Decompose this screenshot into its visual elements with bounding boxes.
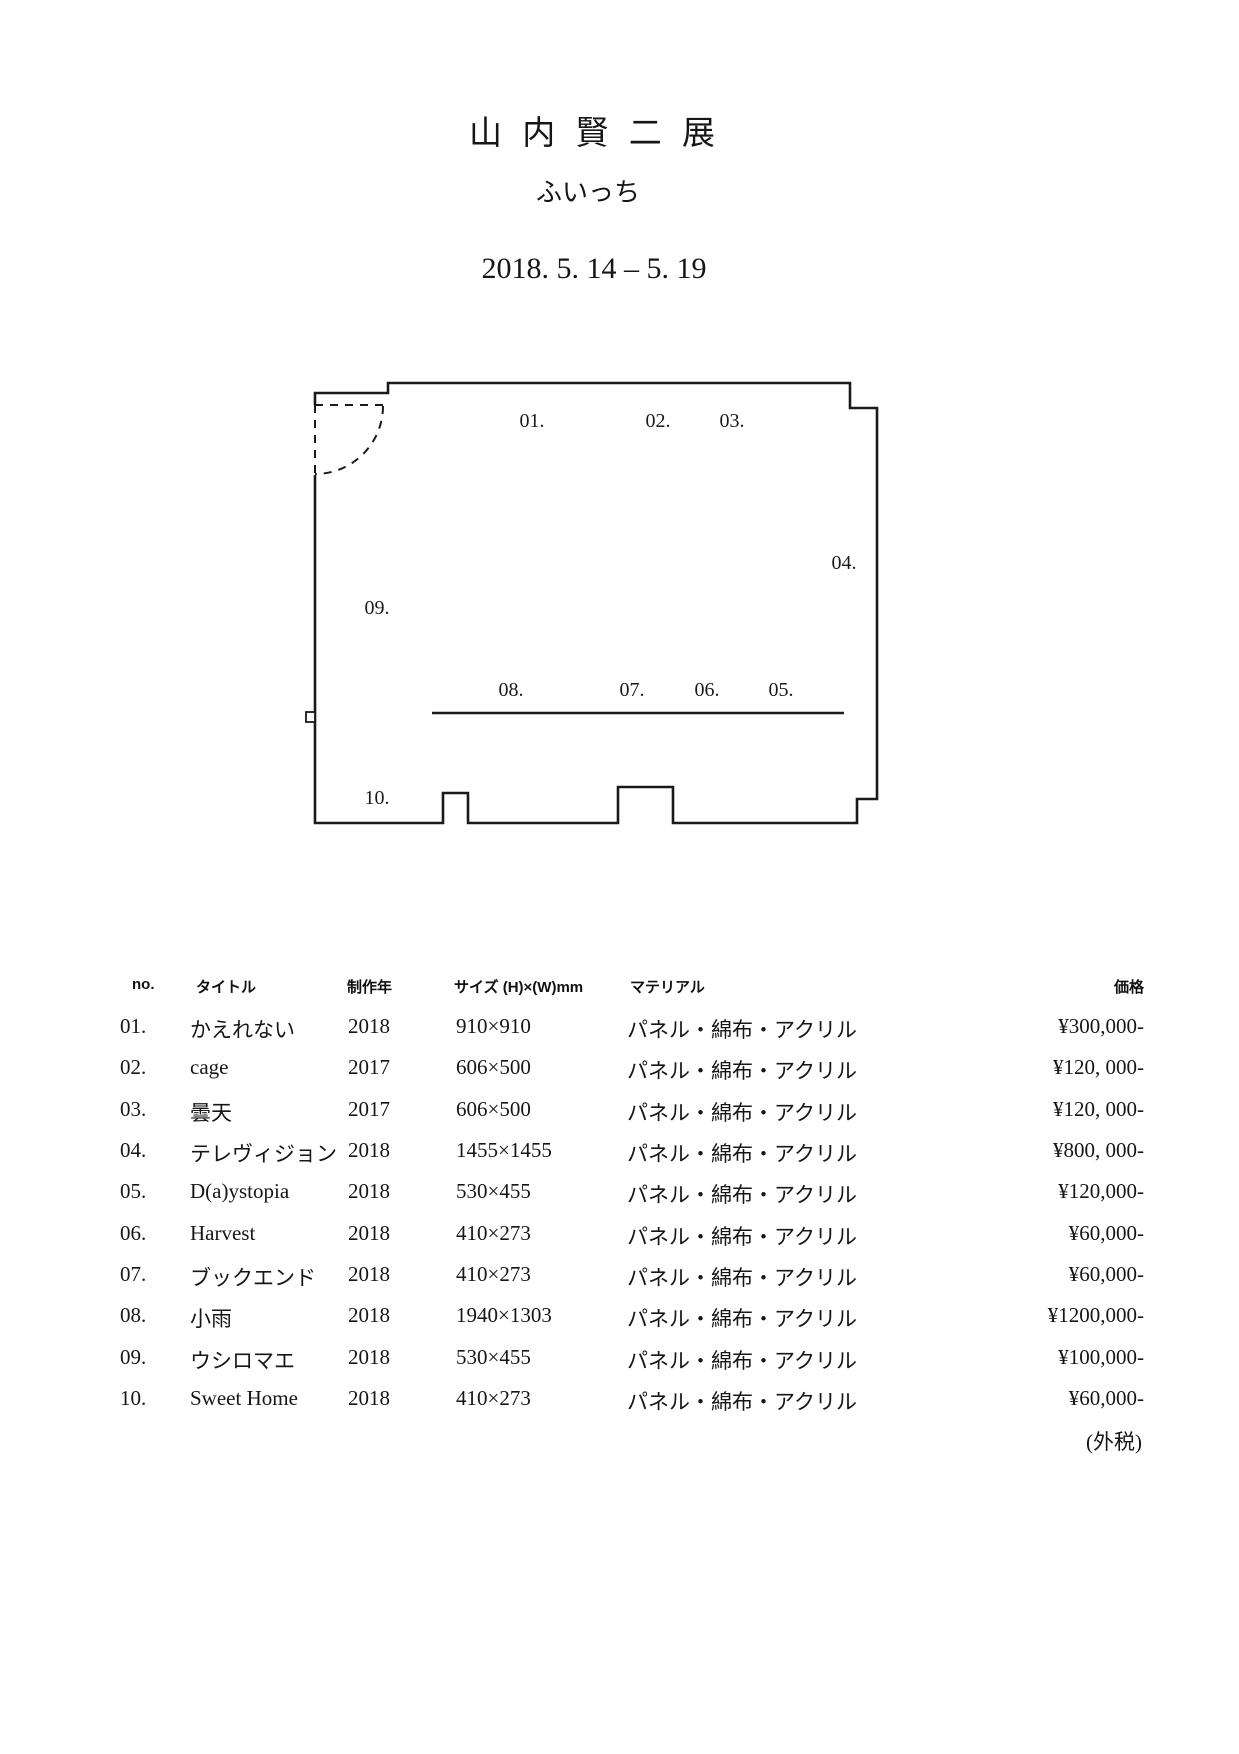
table-row: 01.かえれない2018910×910パネル・綿布・アクリル¥300,000- [0, 1014, 1239, 1040]
cell-no: 03. [120, 1097, 146, 1122]
cell-size: 530×455 [456, 1179, 531, 1204]
plan-label-07: 07. [620, 679, 645, 701]
artwork-position-labels: 01.02.03.04.05.06.07.08.09.10. [365, 410, 857, 809]
cell-year: 2018 [348, 1014, 390, 1039]
cell-title: 曇天 [190, 1097, 232, 1127]
cell-year: 2018 [348, 1262, 390, 1287]
cell-material: パネル・綿布・アクリル [627, 1345, 857, 1375]
cell-no: 04. [120, 1138, 146, 1163]
cell-title: Harvest [190, 1221, 255, 1246]
cell-material: パネル・綿布・アクリル [627, 1014, 857, 1044]
cell-size: 530×455 [456, 1345, 531, 1370]
cell-material: パネル・綿布・アクリル [627, 1221, 857, 1251]
header-title: タイトル [196, 976, 256, 997]
plan-label-02: 02. [646, 410, 671, 432]
table-row: 02.cage2017606×500パネル・綿布・アクリル¥120, 000- [0, 1055, 1239, 1081]
cell-material: パネル・綿布・アクリル [627, 1386, 857, 1416]
plan-label-09: 09. [365, 597, 390, 619]
cell-price: ¥120, 000- [1053, 1097, 1144, 1122]
cell-title: ブックエンド [190, 1262, 316, 1292]
cell-size: 606×500 [456, 1055, 531, 1080]
cell-price: ¥120,000- [1058, 1179, 1144, 1204]
cell-price: ¥1200,000- [1048, 1303, 1144, 1328]
cell-material: パネル・綿布・アクリル [627, 1262, 857, 1292]
cell-size: 410×273 [456, 1262, 531, 1287]
cell-size: 410×273 [456, 1386, 531, 1411]
plan-label-04: 04. [832, 552, 857, 574]
header-no: no. [132, 976, 155, 993]
cell-year: 2018 [348, 1179, 390, 1204]
gallery-outer-wall [315, 383, 877, 823]
cell-title: かえれない [190, 1014, 295, 1044]
cell-price: ¥300,000- [1058, 1014, 1144, 1039]
cell-title: ウシロマエ [190, 1345, 295, 1375]
cell-price: ¥60,000- [1069, 1221, 1144, 1246]
floor-plan: 01.02.03.04.05.06.07.08.09.10. [0, 0, 1239, 1754]
cell-size: 1455×1455 [456, 1138, 552, 1163]
table-header-row: no. タイトル 制作年 サイズ (H)×(W)mm マテリアル 価格 [0, 976, 1239, 996]
cell-price: ¥60,000- [1069, 1386, 1144, 1411]
table-row: 06.Harvest2018410×273パネル・綿布・アクリル¥60,000- [0, 1221, 1239, 1247]
table-row: 07.ブックエンド2018410×273パネル・綿布・アクリル¥60,000- [0, 1262, 1239, 1288]
cell-no: 09. [120, 1345, 146, 1370]
cell-no: 08. [120, 1303, 146, 1328]
cell-material: パネル・綿布・アクリル [627, 1055, 857, 1085]
plan-label-03: 03. [720, 410, 745, 432]
door-swing-arc [315, 406, 383, 474]
plan-label-06: 06. [695, 679, 720, 701]
cell-year: 2018 [348, 1303, 390, 1328]
cell-no: 06. [120, 1221, 146, 1246]
cell-no: 01. [120, 1014, 146, 1039]
cell-title: cage [190, 1055, 228, 1080]
cell-title: 小雨 [190, 1303, 232, 1333]
cell-price: ¥800, 000- [1053, 1138, 1144, 1163]
cell-year: 2018 [348, 1221, 390, 1246]
cell-price: ¥120, 000- [1053, 1055, 1144, 1080]
header-material: マテリアル [630, 976, 705, 997]
plan-label-01: 01. [520, 410, 545, 432]
header-price: 価格 [1114, 976, 1144, 997]
table-row: 04.テレヴィジョン20181455×1455パネル・綿布・アクリル¥800, … [0, 1138, 1239, 1164]
table-row: 09.ウシロマエ2018530×455パネル・綿布・アクリル¥100,000- [0, 1345, 1239, 1371]
table-row: 08.小雨20181940×1303パネル・綿布・アクリル¥1200,000- [0, 1303, 1239, 1329]
cell-price: ¥100,000- [1058, 1345, 1144, 1370]
cell-title: Sweet Home [190, 1386, 298, 1411]
cell-material: パネル・綿布・アクリル [627, 1097, 857, 1127]
plan-label-05: 05. [769, 679, 794, 701]
cell-title: テレヴィジョン [190, 1138, 337, 1168]
cell-price: ¥60,000- [1069, 1262, 1144, 1287]
cell-material: パネル・綿布・アクリル [627, 1179, 857, 1209]
cell-size: 410×273 [456, 1221, 531, 1246]
plan-label-10: 10. [365, 787, 390, 809]
cell-size: 606×500 [456, 1097, 531, 1122]
cell-year: 2018 [348, 1386, 390, 1411]
cell-size: 910×910 [456, 1014, 531, 1039]
plan-label-08: 08. [499, 679, 524, 701]
cell-year: 2017 [348, 1055, 390, 1080]
cell-no: 10. [120, 1386, 146, 1411]
cell-no: 07. [120, 1262, 146, 1287]
table-row: 03.曇天2017606×500パネル・綿布・アクリル¥120, 000- [0, 1097, 1239, 1123]
cell-material: パネル・綿布・アクリル [627, 1303, 857, 1333]
left-wall-pillar [306, 712, 315, 722]
cell-no: 02. [120, 1055, 146, 1080]
cell-material: パネル・綿布・アクリル [627, 1138, 857, 1168]
header-year: 制作年 [347, 976, 392, 997]
cell-year: 2018 [348, 1138, 390, 1163]
table-row: 05.D(a)ystopia2018530×455パネル・綿布・アクリル¥120… [0, 1179, 1239, 1205]
tax-note: (外税) [1086, 1426, 1142, 1456]
cell-no: 05. [120, 1179, 146, 1204]
cell-year: 2018 [348, 1345, 390, 1370]
cell-year: 2017 [348, 1097, 390, 1122]
cell-title: D(a)ystopia [190, 1179, 289, 1204]
header-size: サイズ (H)×(W)mm [454, 976, 583, 997]
table-row: 10.Sweet Home2018410×273パネル・綿布・アクリル¥60,0… [0, 1386, 1239, 1412]
cell-size: 1940×1303 [456, 1303, 552, 1328]
